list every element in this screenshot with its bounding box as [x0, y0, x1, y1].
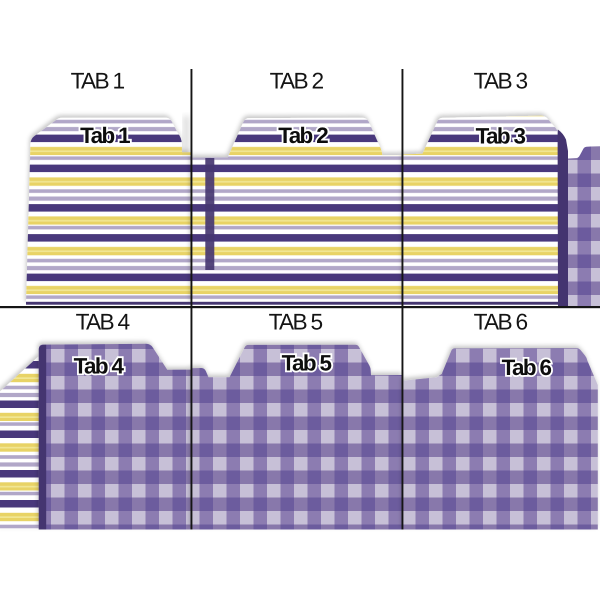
svg-text:TAB 5: TAB 5 [269, 308, 323, 334]
svg-text:TAB 6: TAB 6 [474, 308, 528, 334]
svg-text:Tab 2: Tab 2 [278, 123, 328, 148]
svg-text:Tab 6: Tab 6 [502, 355, 552, 380]
svg-text:TAB 2: TAB 2 [270, 68, 324, 94]
svg-text:Tab 5: Tab 5 [282, 351, 332, 376]
svg-text:TAB 3: TAB 3 [474, 68, 528, 94]
svg-text:TAB 1: TAB 1 [71, 68, 125, 94]
svg-text:TAB 4: TAB 4 [76, 308, 130, 334]
svg-text:Tab 1: Tab 1 [80, 123, 130, 148]
svg-text:Tab 3: Tab 3 [476, 124, 526, 149]
svg-text:Tab 4: Tab 4 [74, 354, 125, 379]
